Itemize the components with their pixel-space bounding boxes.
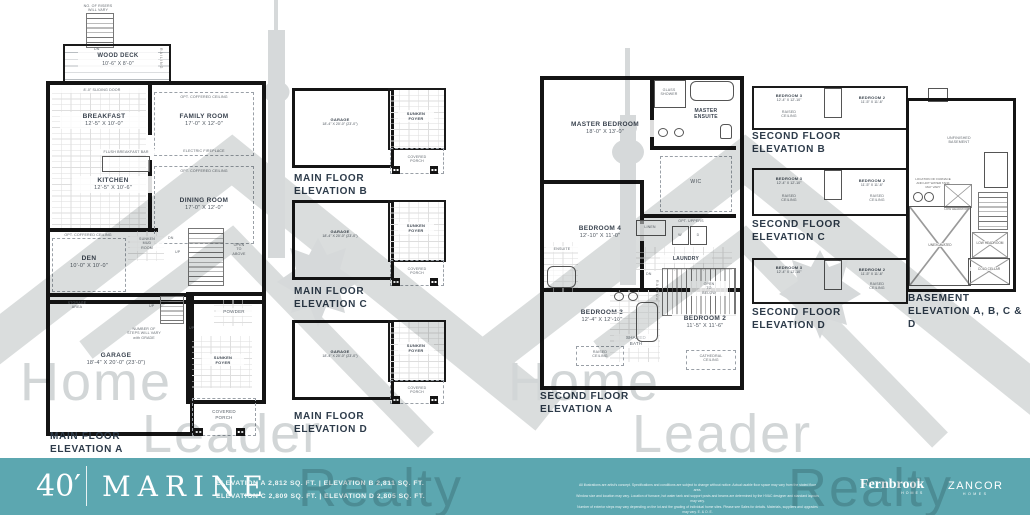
risers-note: NO. OF RISERS WILL VARY (62, 4, 134, 13)
spec-line-1: ELEVATION A 2,812 SQ. FT. | ELEVATION B … (216, 481, 424, 488)
porch-post (392, 166, 400, 174)
plan-title-main-a: MAIN FLOOR ELEVATION A (50, 430, 123, 456)
title-line: ELEVATION B (294, 185, 367, 198)
room-dims: 12'-4" X 12'-10" (758, 270, 820, 275)
open-to-above-label: OPEN TO ABOVE (224, 243, 254, 256)
bedroom-2-label: BEDROOM 2 11'-5" X 11'-6" (844, 95, 900, 105)
wall (644, 214, 736, 218)
footer-bar: 40′ MARINE ELEVATION A 2,812 SQ. FT. | E… (0, 458, 1030, 515)
label-line: ROOM (132, 246, 162, 250)
kitchen-island (102, 156, 150, 172)
den-label: DEN 10'-0" X 10'-0" (53, 255, 125, 270)
room-breakfast: BREAKFAST 12'-5" X 10'-0" (60, 112, 148, 129)
zancor-sub: HOMES (948, 492, 1003, 496)
room-dims: 10'-0" X 10'-0" (53, 263, 125, 270)
watermark-word: Leader (632, 404, 812, 464)
room-name: DEN (53, 255, 125, 263)
room-name: KITCHEN (74, 177, 152, 185)
bedroom-2-label: BEDROOM 2 11'-5" X 11'-6" (844, 178, 900, 188)
main-d-garage: GARAGE 18'-4" X 20'-0" (23'-0") (292, 320, 394, 400)
opt-uppers-note: OPT. UPPERS (670, 219, 712, 223)
room-dims: 18'-4" X 20'-0" (23'-0") (295, 234, 385, 239)
room-dims: 11'-5" X 11'-6" (844, 100, 900, 105)
title-line: ELEVATION A (50, 443, 123, 456)
laundry-label: LAUNDRY (660, 255, 712, 263)
main-c-foyer: SUNKEN FOYER (388, 200, 446, 262)
label-line: PORCH (391, 390, 443, 394)
x-mark (969, 259, 1009, 284)
room-dims: 18'-4" X 20'-0" (23'-0") (295, 122, 385, 127)
bath-fixture (824, 88, 842, 118)
wood-deck-label: WOOD DECK 10'-6" X 8'-0" (78, 52, 158, 68)
dn-label: DN (646, 272, 652, 276)
label-line: COLD (978, 267, 987, 271)
wic-label: WIC (661, 179, 731, 185)
raised-ceiling-label: RAISED CEILING (856, 194, 898, 203)
x-mark (945, 185, 971, 207)
main-b-foyer: SUNKEN FOYER (388, 88, 446, 150)
label-line: CEILING (856, 198, 898, 202)
title-line: ELEVATION A (540, 403, 629, 416)
room-dims: 12'-10" X 11'-0" (554, 233, 646, 240)
room-dims: 11'-5" X 11'-6" (844, 183, 900, 188)
title-line: ELEVATION C (752, 231, 841, 244)
porch-label: COVERED PORCH (193, 409, 255, 421)
label-line: FOYER (400, 228, 432, 233)
dining-label: DINING ROOM 17'-0" X 12'-0" (155, 197, 253, 212)
porch-post (392, 396, 400, 404)
room-bedroom-2: BEDROOM 2 11'-5" X 11'-6" (672, 314, 738, 331)
note-line: with GRADE (118, 336, 170, 340)
room-name: ENSUITE (680, 114, 732, 120)
room-den: DEN 10'-0" X 10'-0" (52, 238, 126, 292)
label-line: HEADROOM (985, 241, 1004, 245)
room-dims: 17'-0" X 12'-0" (155, 121, 253, 128)
unexcavated-label: UNEXCAVATED (910, 243, 970, 247)
plan-title-basement: BASEMENT ELEVATION A, B, C & D (908, 292, 1030, 331)
foyer-label: SUNKEN FOYER (398, 222, 434, 234)
room-kitchen: KITCHEN 12'-5" X 10'-6" (72, 176, 154, 193)
label-line: PORCH (391, 159, 443, 163)
title-line: ELEVATION C (294, 298, 367, 311)
title-line: ELEVATION B (752, 143, 841, 156)
title-line: MAIN FLOOR (294, 410, 367, 423)
low-headroom-zone: LOW HEADROOM (972, 232, 1008, 258)
room-name: BEDROOM 2 (674, 315, 736, 323)
main-b-garage: GARAGE 18'-4" X 20'-0" (23'-0") (292, 88, 394, 168)
unfinished-basement-label: UNFINISHED BASEMENT (928, 136, 990, 145)
porch-label: COVERED PORCH (391, 386, 443, 395)
bath-rough-in (984, 152, 1008, 188)
room-dims: 18'-0" X 13'-0" (555, 129, 655, 136)
sink (674, 128, 684, 137)
sink (614, 292, 624, 301)
powder-label: POWDER (216, 308, 252, 316)
label-line: BASEMENT (928, 140, 990, 144)
foyer-label: SUNKEN FOYER (398, 342, 434, 354)
sink (658, 128, 668, 137)
porch-post (194, 428, 203, 436)
porch-post (430, 278, 438, 286)
main-c-garage: GARAGE 18'-4" X 20'-0" (23'-0") (292, 200, 394, 280)
disclaimer: All illustrations are artist's concept. … (575, 483, 820, 515)
toilet (720, 124, 732, 139)
steps-vary-note: NUMBER OF STEPS WILL VARY with GRADE (116, 326, 172, 341)
raised-ceiling-label: RAISED CEILING (768, 110, 810, 119)
room-garage: GARAGE 18'-4" X 20'-0" (23'-0") (62, 352, 170, 367)
porch-post (430, 396, 438, 404)
wall (650, 146, 736, 150)
stairs-up (188, 228, 224, 286)
title-line: ELEVATION D (294, 423, 367, 436)
family-label: FAMILY ROOM 17'-0" X 12'-0" (155, 113, 253, 128)
porch-label: COVERED PORCH (391, 155, 443, 164)
cold-cellar-zone: COLD CELLAR (968, 258, 1010, 285)
dryer-label: D (691, 233, 705, 237)
shared-tub (636, 302, 658, 342)
disclaimer-line: All illustrations are artist's concept. … (575, 483, 820, 494)
storage-area-label: STORAGE AREA (56, 301, 98, 310)
low-headroom-label: LOW HEADROOM (973, 241, 1007, 245)
main-d-foyer: SUNKEN FOYER (388, 320, 446, 382)
foyer-label: SUNKEN FOYER (202, 354, 244, 366)
mudroom-label: SUNKEN MUD ROOM (130, 236, 164, 251)
title-line: MAIN FLOOR (294, 172, 367, 185)
disclaimer-line: Window size and location may vary. Locat… (575, 494, 820, 505)
washer: W (672, 226, 689, 245)
wall (650, 76, 654, 150)
room-family: OPT. COFFERED CEILING FAMILY ROOM 17'-0"… (154, 92, 254, 156)
room-dims: 18'-4" X 20'-0" (23'-0") (62, 360, 170, 367)
room-wic: WIC (660, 156, 732, 212)
ensuite-label: ENSUITE (546, 246, 578, 252)
room-dims: 12'-4" X 12'-10" (758, 181, 820, 186)
label-line: BELOW (692, 291, 726, 295)
up-label: UP (189, 326, 194, 330)
garage-label: GARAGE 18'-4" X 20'-0" (23'-0") (295, 229, 385, 239)
room-dims: 12'-5" X 10'-6" (74, 185, 152, 192)
room-name: GARAGE (62, 352, 170, 360)
room-name: BEDROOM 4 (554, 225, 646, 233)
breakfast-bar-note: FLUSH BREAKFAST BAR (92, 149, 160, 155)
coffered-note: OPT. COFFERED CEILING (155, 95, 253, 99)
bath-fixture (824, 260, 842, 290)
ensuite-tub (690, 81, 734, 101)
room-dims: 10'-6" X 8'-0" (80, 61, 156, 67)
wall (540, 180, 644, 184)
fireplace-note: ELECTRIC FIREPLACE (155, 149, 253, 153)
coffered-note: OPT. COFFERED CEILING (155, 169, 253, 173)
unexcavated-zone: UNEXCAVATED (909, 206, 971, 286)
up-label: UP (175, 250, 180, 254)
label-line: CEILING (577, 354, 623, 358)
title-line: BASEMENT (908, 292, 1030, 305)
bath-fixture (824, 170, 842, 200)
coffered-note: OPT. COFFERED CEILING (52, 233, 124, 237)
title-line: MAIN FLOOR (294, 285, 367, 298)
water-tank-icon (924, 192, 934, 202)
room-dims: 17'-0" X 12'-0" (155, 205, 253, 212)
garage-label: GARAGE 18'-4" X 20'-0" (23'-0") (295, 117, 385, 127)
divider (86, 466, 87, 506)
bedroom-3-label: BEDROOM 3 12'-4" X 12'-10" (758, 176, 820, 186)
label-line: CEILING (768, 198, 810, 202)
disclaimer-line: Number of exterior steps may vary depend… (575, 505, 820, 515)
room-dims: 12'-5" X 10'-0" (62, 121, 146, 128)
garage-label: GARAGE 18'-4" X 20'-0" (23'-0") (295, 349, 385, 359)
plan-title-main-d: MAIN FLOOR ELEVATION D (294, 410, 367, 436)
plan-title-main-b: MAIN FLOOR ELEVATION B (294, 172, 367, 198)
title-line: SECOND FLOOR (752, 306, 841, 319)
room-sunken-foyer: SUNKEN FOYER (192, 336, 252, 388)
glass-shower: GLASS SHOWER (654, 80, 686, 108)
room-name: BREAKFAST (62, 113, 146, 121)
title-line: SECOND FLOOR (540, 390, 629, 403)
washer-label: W (673, 233, 687, 237)
porch-post (392, 278, 400, 286)
plan-title-main-c: MAIN FLOOR ELEVATION C (294, 285, 367, 311)
zancor-name: ZANCOR (948, 480, 1003, 492)
label-line: CEILING (856, 286, 898, 290)
label-line: CEILING (687, 358, 735, 362)
label-line: FOYER (204, 360, 242, 365)
cathedral-ceiling-label: CATHEDRAL CEILING (687, 354, 735, 363)
plan-title-second-b: SECOND FLOOR ELEVATION B (752, 130, 841, 156)
open-to-below-label: OPEN TO BELOW (690, 281, 728, 296)
raised-ceiling-zone: RAISED CEILING (576, 346, 624, 366)
wall (148, 85, 152, 135)
porch-post (236, 428, 245, 436)
foyer-label: SUNKEN FOYER (398, 110, 434, 122)
sliding-door-note: 8'-0" SLIDING DOOR (58, 87, 146, 93)
floorplan-sheet: NO. OF RISERS WILL VARY DN WOOD DECK 10'… (0, 0, 1030, 515)
raised-ceiling-label: RAISED CEILING (577, 350, 623, 359)
furnace-icon (913, 192, 923, 202)
room-name: DINING ROOM (155, 197, 253, 205)
porch-post (430, 166, 438, 174)
room-dims: 11'-5" X 11'-6" (844, 272, 900, 277)
label-line: CELLAR (988, 267, 1000, 271)
dryer: D (690, 226, 707, 245)
room-dims: 12'-4" X 12'-10" (758, 98, 820, 103)
plan-title-second-a: SECOND FLOOR ELEVATION A (540, 390, 629, 416)
label-line: CEILING (768, 114, 810, 118)
raised-ceiling-label: RAISED CEILING (856, 282, 898, 291)
shower-label: GLASS SHOWER (655, 88, 683, 97)
basement-stairs (978, 192, 1008, 230)
x-mark (973, 233, 1007, 257)
linen-closet: LINEN (636, 220, 666, 236)
porch-label: COVERED PORCH (391, 267, 443, 276)
garage-stairs (160, 296, 184, 324)
zancor-logo: ZANCOR HOMES (948, 480, 1003, 496)
room-powder: POWDER (214, 300, 252, 326)
low-headroom-zone (944, 184, 972, 208)
cathedral-ceiling-zone: CATHEDRAL CEILING (686, 350, 736, 370)
exterior-stairs (86, 13, 114, 48)
bedroom-3-label: BEDROOM 3 12'-4" X 12'-10" (758, 93, 820, 103)
up-label: UP (149, 304, 154, 308)
label-line: FOYER (400, 116, 432, 121)
sink (628, 292, 638, 301)
dn-label: DN (168, 236, 174, 240)
room-bedroom-4: BEDROOM 4 12'-10" X 11'-0" (552, 224, 648, 241)
cold-cellar-label: COLD CELLAR (969, 267, 1009, 271)
bedroom-3-label: BEDROOM 3 12'-4" X 12'-10" (758, 265, 820, 275)
room-mudroom: SUNKEN MUD ROOM (128, 231, 164, 261)
spec-line-2: ELEVATION C 2,809 SQ. FT. | ELEVATION D … (216, 494, 425, 501)
room-name: WOOD DECK (80, 53, 156, 61)
title-line: ELEVATION D (752, 319, 841, 332)
room-name: FAMILY ROOM (155, 113, 253, 121)
room-dims: 11'-5" X 11'-6" (674, 323, 736, 330)
label-line: ABOVE (224, 252, 254, 256)
bedroom-2-label: BEDROOM 2 11'-5" X 11'-6" (844, 267, 900, 277)
room-name: MASTER BEDROOM (555, 121, 655, 129)
title-line: SECOND FLOOR (752, 218, 841, 231)
ensuite-small-tub (547, 266, 576, 288)
label-line: AREA (56, 305, 98, 309)
room-master-ensuite: MASTER ENSUITE (680, 108, 732, 121)
raised-ceiling-label: RAISED CEILING (768, 194, 810, 203)
plan-title-second-c: SECOND FLOOR ELEVATION C (752, 218, 841, 244)
label-line: SHOWER (655, 92, 683, 96)
plan-title-second-d: SECOND FLOOR ELEVATION D (752, 306, 841, 332)
linen-label: LINEN (637, 225, 663, 229)
label-line: PORCH (193, 415, 255, 421)
railing-label: RAILING (159, 48, 163, 69)
label-line: PORCH (391, 271, 443, 275)
fernbrook-logo: Fernbrook HOMES (860, 477, 924, 495)
frontage-label: 40′ (36, 469, 81, 504)
room-dims: 18'-4" X 20'-0" (23'-0") (295, 354, 385, 359)
title-line: ELEVATION A, B, C & D (908, 305, 1030, 331)
label-line: FOYER (400, 348, 432, 353)
room-master-bedroom: MASTER BEDROOM 18'-0" X 13'-0" (553, 120, 657, 137)
title-line: SECOND FLOOR (752, 130, 841, 143)
title-line: MAIN FLOOR (50, 430, 123, 443)
label-line: LOW (977, 241, 984, 245)
